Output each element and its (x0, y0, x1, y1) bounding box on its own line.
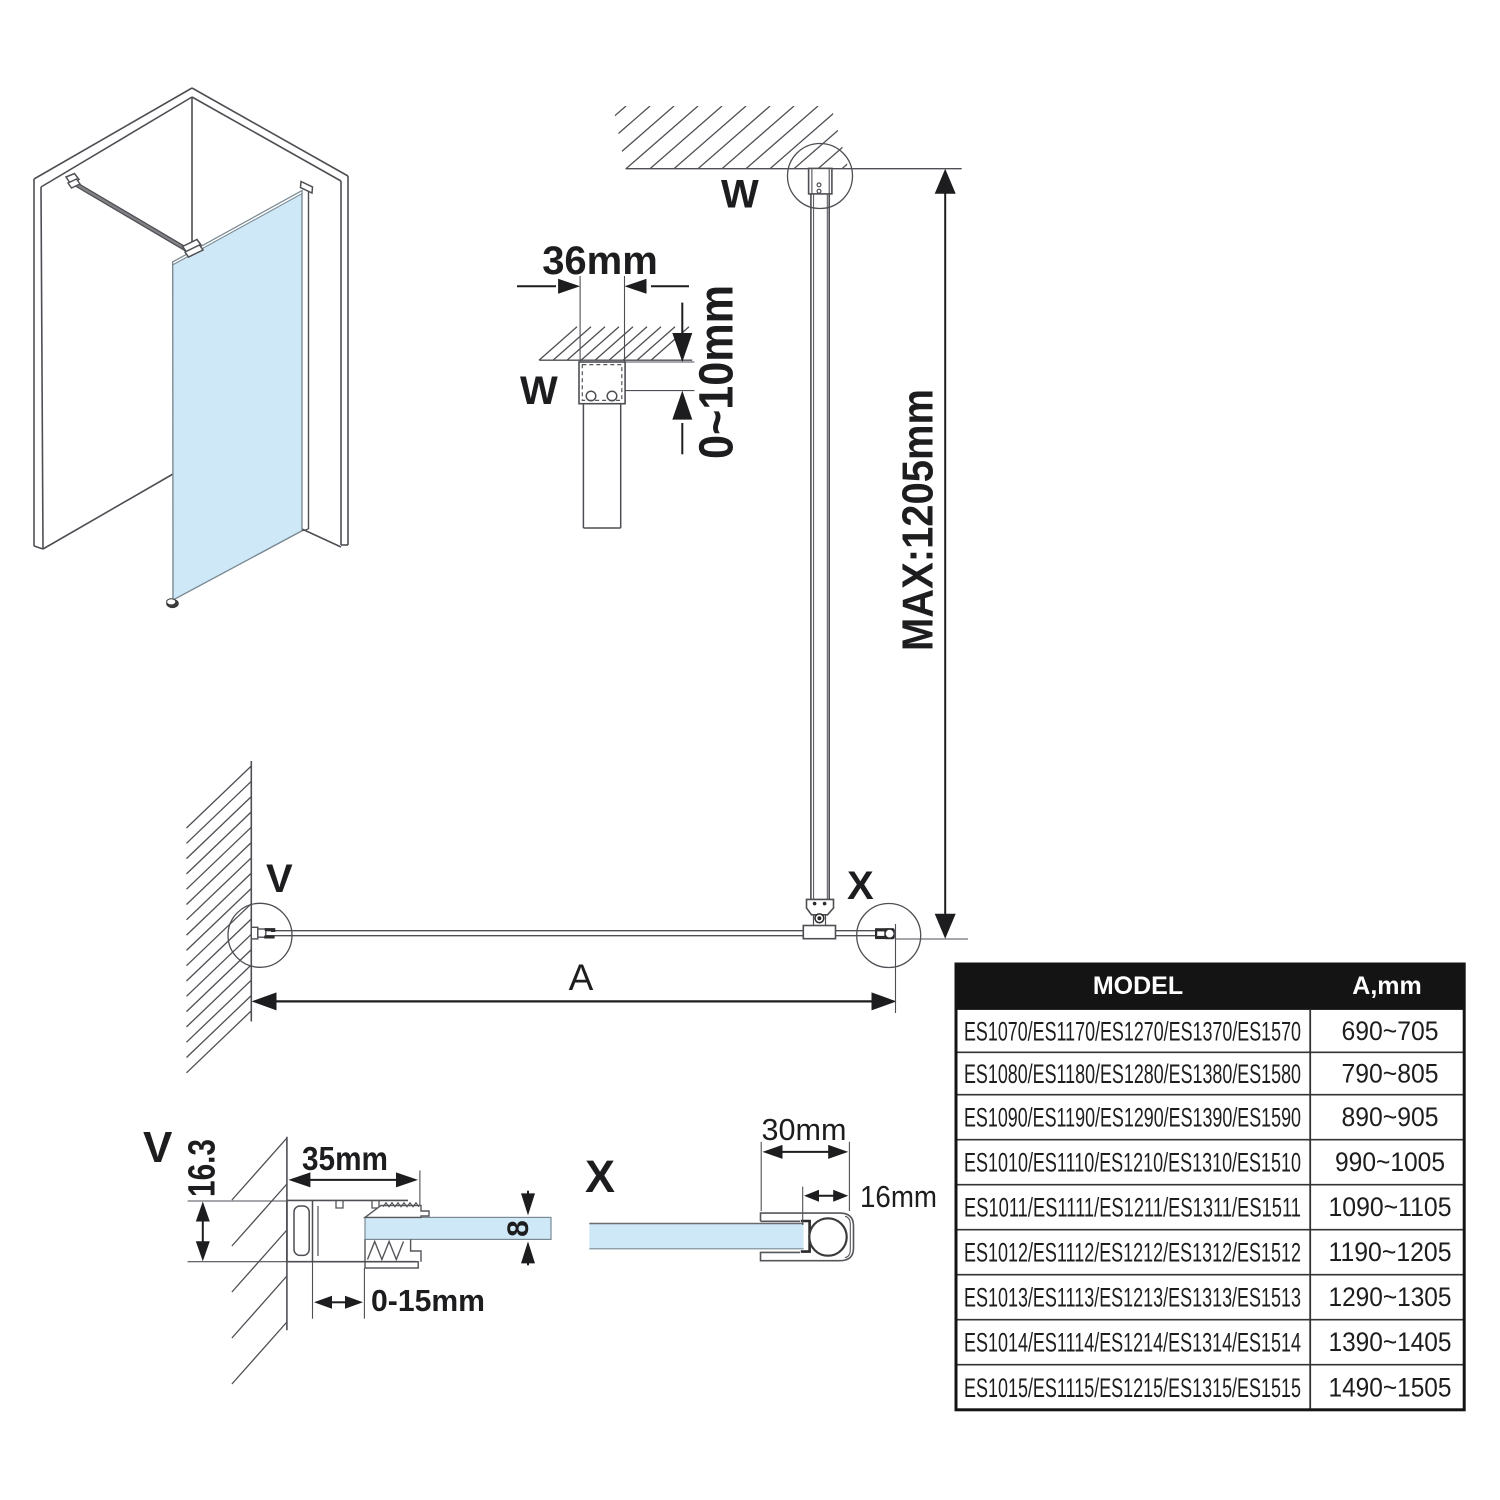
svg-text:0-15mm: 0-15mm (371, 1283, 485, 1318)
svg-text:35mm: 35mm (302, 1140, 388, 1177)
svg-text:0~10mm: 0~10mm (691, 285, 744, 459)
svg-text:ES1070/ES1170/ES1270/ES1370/ES: ES1070/ES1170/ES1270/ES1370/ES1570 (964, 1017, 1301, 1047)
svg-text:X: X (847, 864, 874, 908)
svg-text:1390~1405: 1390~1405 (1329, 1327, 1452, 1357)
svg-text:X: X (585, 1151, 615, 1202)
svg-text:790~805: 790~805 (1342, 1059, 1439, 1089)
svg-text:ES1010/ES1110/ES1210/ES1310/ES: ES1010/ES1110/ES1210/ES1310/ES1510 (964, 1148, 1301, 1178)
svg-text:30mm: 30mm (762, 1112, 847, 1147)
svg-text:890~905: 890~905 (1342, 1102, 1439, 1132)
svg-text:16mm: 16mm (860, 1179, 937, 1214)
svg-text:ES1080/ES1180/ES1280/ES1380/ES: ES1080/ES1180/ES1280/ES1380/ES1580 (964, 1059, 1301, 1089)
svg-text:MODEL: MODEL (1093, 972, 1183, 1000)
svg-text:1490~1505: 1490~1505 (1329, 1372, 1452, 1402)
svg-text:ES1012/ES1112/ES1212/ES1312/ES: ES1012/ES1112/ES1212/ES1312/ES1512 (964, 1238, 1301, 1268)
svg-text:ES1090/ES1190/ES1290/ES1390/ES: ES1090/ES1190/ES1290/ES1390/ES1590 (964, 1103, 1301, 1133)
svg-text:ES1014/ES1114/ES1214/ES1314/ES: ES1014/ES1114/ES1214/ES1314/ES1514 (964, 1328, 1301, 1358)
svg-text:1090~1105: 1090~1105 (1329, 1192, 1452, 1222)
svg-text:ES1011/ES1111/ES1211/ES1311/ES: ES1011/ES1111/ES1211/ES1311/ES1511 (964, 1193, 1301, 1223)
svg-text:W: W (721, 173, 759, 217)
svg-text:690~705: 690~705 (1342, 1016, 1439, 1046)
svg-text:V: V (143, 1123, 173, 1172)
svg-text:A: A (569, 957, 594, 998)
svg-text:ES1013/ES1113/ES1213/ES1313/ES: ES1013/ES1113/ES1213/ES1313/ES1513 (964, 1283, 1301, 1313)
svg-text:MAX:1205mm: MAX:1205mm (893, 389, 942, 651)
svg-text:990~1005: 990~1005 (1335, 1147, 1445, 1177)
svg-text:36mm: 36mm (542, 239, 658, 283)
svg-text:1290~1305: 1290~1305 (1329, 1282, 1452, 1312)
svg-text:V: V (266, 857, 293, 901)
svg-text:W: W (520, 369, 558, 413)
svg-text:1190~1205: 1190~1205 (1329, 1237, 1452, 1267)
svg-text:8: 8 (502, 1220, 535, 1237)
svg-text:A,mm: A,mm (1352, 972, 1421, 1000)
svg-text:ES1015/ES1115/ES1215/ES1315/ES: ES1015/ES1115/ES1215/ES1315/ES1515 (964, 1373, 1301, 1403)
svg-text:16.3: 16.3 (181, 1139, 223, 1197)
